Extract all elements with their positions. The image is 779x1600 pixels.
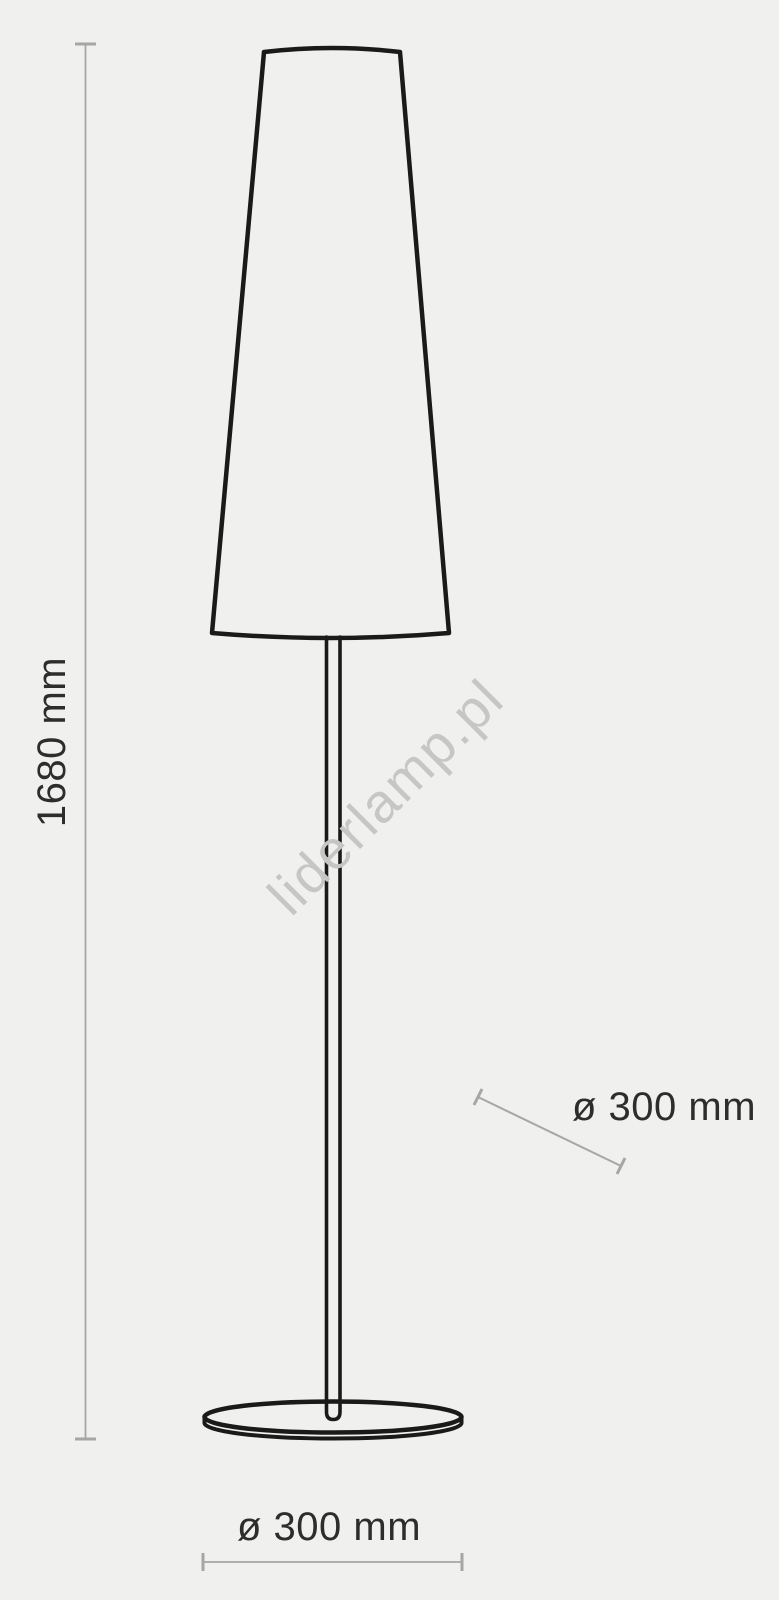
lamp-base-ellipse (205, 1402, 462, 1433)
drawing-canvas: 1680 mm ø 300 mm ø 300 mm liderlamp.pl (0, 0, 779, 1600)
base-diameter-label: ø 300 mm (237, 1507, 421, 1547)
shade-diameter-tick-end (617, 1158, 625, 1174)
lamp-shade-outline (212, 48, 449, 638)
height-dimension-label: 1680 mm (32, 657, 72, 827)
shade-diameter-label: ø 300 mm (572, 1087, 756, 1127)
shade-diameter-tick-start (474, 1089, 482, 1105)
lamp-pole-outline (327, 637, 341, 1420)
